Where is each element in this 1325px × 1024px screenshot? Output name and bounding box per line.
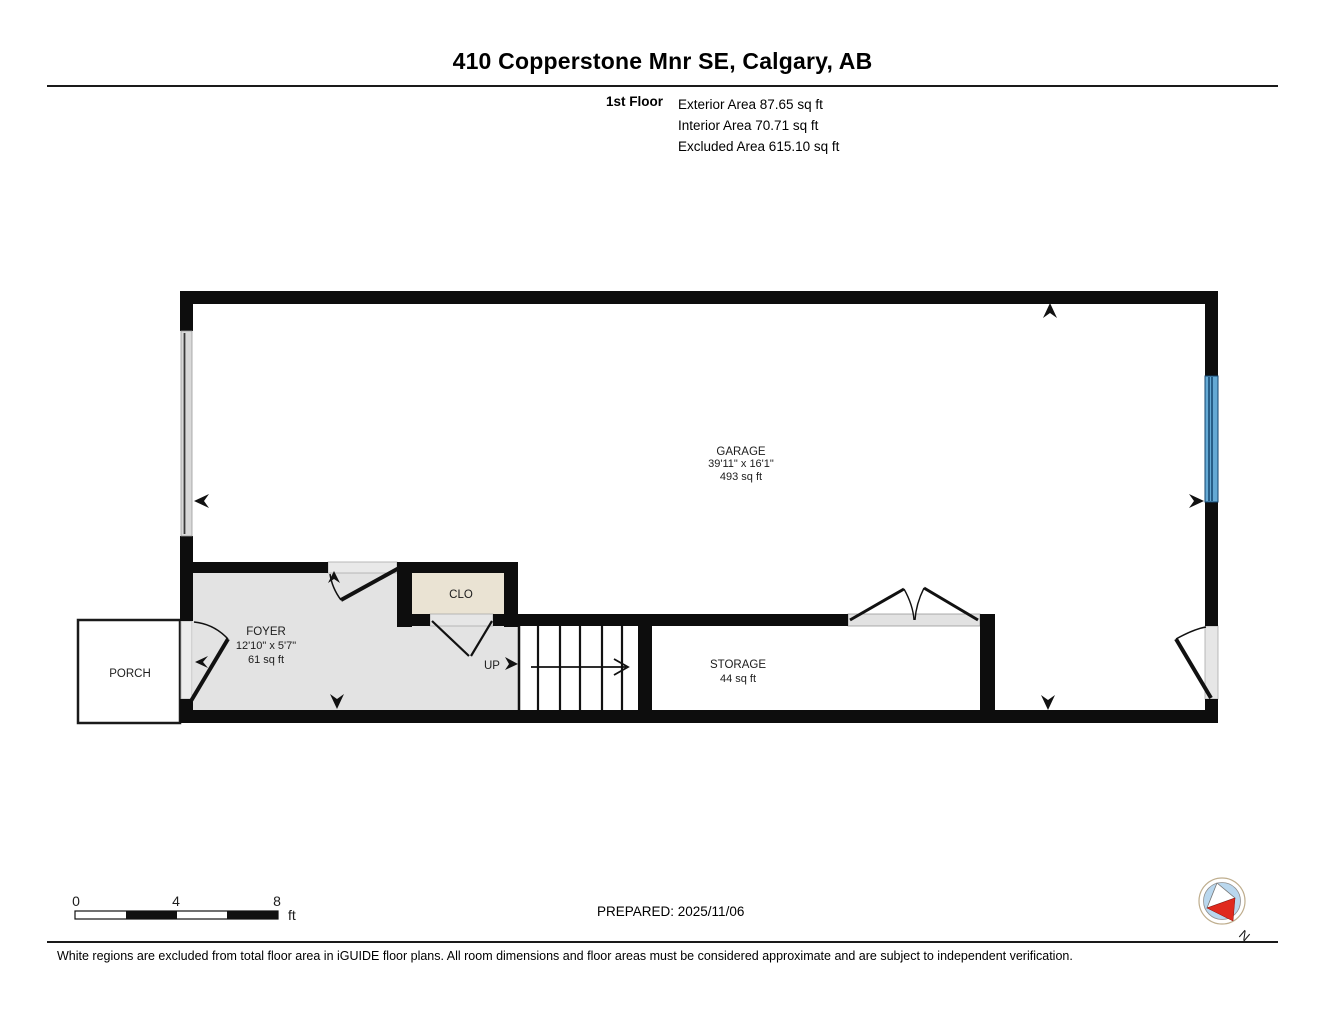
foyer-label: FOYER <box>246 626 286 638</box>
garage-mandoor-arc <box>1176 627 1206 639</box>
storage-area: 44 sq ft <box>720 673 756 685</box>
wall-left-lower <box>180 699 193 723</box>
scale-tick-0: 0 <box>72 893 80 909</box>
wall-closet-bottom-left <box>411 614 430 626</box>
wall-foyer-garage <box>193 562 328 573</box>
wall-right-lower <box>1205 699 1218 723</box>
prepared-date: PREPARED: 2025/11/06 <box>597 904 744 919</box>
scale-tick-8: 8 <box>273 893 281 909</box>
arrow-down-icon <box>1041 695 1055 710</box>
wall-top <box>180 291 1218 304</box>
foyer-door-threshold <box>328 562 397 573</box>
arrow-left-icon <box>194 494 209 508</box>
room-floors <box>78 573 638 723</box>
foyer-area: 61 sq ft <box>248 654 284 666</box>
scale-unit: ft <box>288 907 296 923</box>
porch-door-threshold <box>181 621 192 699</box>
up-label: UP <box>484 660 500 672</box>
wall-storage-right <box>980 614 995 711</box>
wall-stairs-storage <box>638 626 652 710</box>
closet-label: CLO <box>449 589 473 601</box>
wall-left-mid <box>180 536 193 621</box>
scale-bar-segment <box>227 911 278 919</box>
arrow-right-icon <box>1189 494 1204 508</box>
wall-right-mid <box>1205 502 1218 626</box>
window <box>1205 376 1218 502</box>
garage-area: 493 sq ft <box>720 471 762 483</box>
storage-label: STORAGE <box>710 659 766 671</box>
garage-label: GARAGE <box>716 446 766 458</box>
wall-closet-left <box>397 562 412 627</box>
floor-plan-drawing: GARAGE 39'11" x 16'1" 493 sq ft FOYER 12… <box>0 0 1325 1024</box>
wall-storage-top <box>493 614 848 626</box>
porch-label: PORCH <box>109 668 151 680</box>
garage-door <box>181 331 192 536</box>
footer-divider <box>47 941 1278 943</box>
wall-left-upper <box>180 291 193 331</box>
scale-tick-4: 4 <box>172 893 180 909</box>
wall-closet-top <box>397 562 518 573</box>
garage-dimensions: 39'11" x 16'1" <box>708 458 774 470</box>
disclaimer-text: White regions are excluded from total fl… <box>57 949 1073 963</box>
garage-door-panel <box>181 331 192 536</box>
wall-bottom <box>180 710 1218 723</box>
foyer-dimensions: 12'10" x 5'7" <box>236 640 296 652</box>
stairs-floor <box>518 626 638 710</box>
arrow-up-icon <box>1043 303 1057 318</box>
wall-right-upper <box>1205 291 1218 376</box>
compass: N <box>1199 878 1253 944</box>
closet-door-threshold <box>430 614 493 626</box>
scale-bar-segment <box>126 911 177 919</box>
floor-plan-page: 410 Copperstone Mnr SE, Calgary, AB 1st … <box>0 0 1325 1024</box>
scale-bar: 0 4 8 ft <box>72 893 296 923</box>
